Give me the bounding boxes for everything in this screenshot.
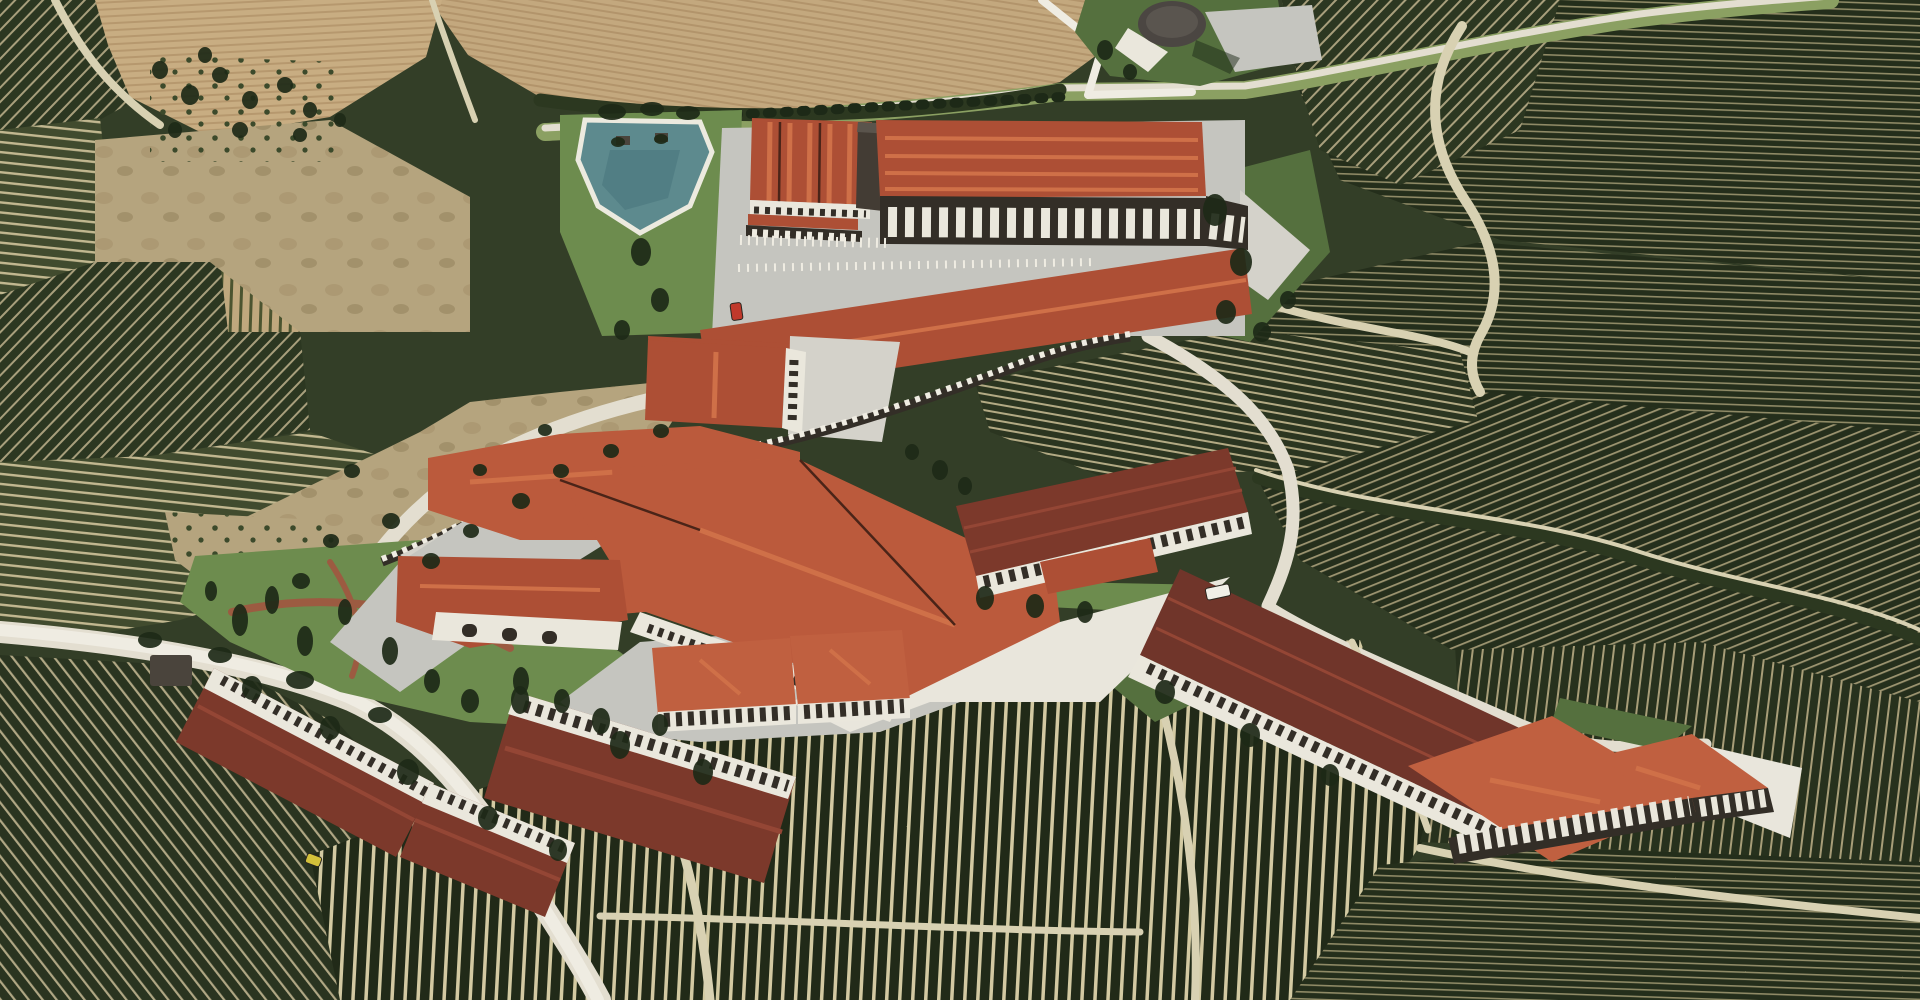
tree <box>473 464 487 476</box>
tree <box>603 444 619 458</box>
tree <box>598 104 626 120</box>
tree <box>1253 322 1271 342</box>
tree <box>1230 248 1252 276</box>
tree <box>1203 194 1227 226</box>
tree <box>198 47 212 63</box>
red-car <box>730 302 743 320</box>
tree <box>297 626 313 656</box>
small-hip-building-ridge <box>714 352 716 418</box>
tree <box>511 686 529 714</box>
circular-pavilion <box>1115 1 1322 74</box>
tree <box>1077 601 1093 623</box>
tree <box>976 586 994 610</box>
tree <box>277 77 293 93</box>
tree <box>338 599 352 625</box>
tree <box>653 424 669 438</box>
tree <box>676 106 700 120</box>
tree <box>538 424 552 436</box>
tree <box>212 67 228 83</box>
tree <box>611 137 625 147</box>
south-pavilion-a-roof <box>652 638 796 716</box>
tree <box>292 573 310 589</box>
tree <box>242 91 258 109</box>
tree <box>397 759 419 785</box>
tree <box>368 707 392 723</box>
tree <box>382 513 400 529</box>
tree <box>512 493 530 509</box>
tree <box>168 122 182 138</box>
tree <box>232 122 248 138</box>
tree <box>1123 64 1137 80</box>
tree <box>1026 594 1044 618</box>
tree <box>232 604 248 636</box>
tree <box>631 238 651 266</box>
tree <box>138 632 162 648</box>
tree <box>208 647 232 663</box>
tree <box>334 113 346 127</box>
tree <box>958 477 972 495</box>
tree <box>932 460 948 480</box>
tree <box>1240 723 1260 747</box>
tree <box>553 464 569 478</box>
tree <box>320 716 340 740</box>
tree <box>293 128 307 142</box>
tree <box>424 669 440 693</box>
south-pavilion-b-pillars <box>804 706 904 712</box>
tree <box>382 637 398 665</box>
tree <box>242 676 262 700</box>
tree <box>654 134 668 144</box>
tree <box>422 553 440 569</box>
tree <box>323 534 339 548</box>
tree <box>461 689 479 713</box>
tree <box>1280 291 1296 309</box>
tree <box>614 320 630 340</box>
tree <box>181 85 199 105</box>
tree <box>265 586 279 614</box>
tree <box>152 61 168 79</box>
tree <box>303 102 317 118</box>
tree <box>549 839 567 861</box>
winery-aerial-photo <box>0 0 1920 1000</box>
tree <box>651 288 669 312</box>
tree <box>652 714 668 736</box>
tree <box>205 581 217 601</box>
aerial-photo-stage <box>0 0 1920 1000</box>
tree <box>592 708 610 734</box>
annex-arch-1 <box>462 624 477 637</box>
tree <box>478 806 498 830</box>
tree <box>1155 680 1175 704</box>
pavilion-roof-top <box>1146 6 1198 38</box>
tree <box>640 102 664 116</box>
tree <box>1321 764 1339 786</box>
tree <box>463 524 479 538</box>
tree <box>610 731 630 759</box>
road-shed <box>150 655 192 686</box>
annex-arch-2 <box>502 628 517 641</box>
tree <box>554 689 570 713</box>
tree <box>286 671 314 689</box>
tree <box>1216 300 1236 324</box>
tree <box>905 444 919 460</box>
tree <box>344 464 360 478</box>
annex-arch-3 <box>542 631 557 644</box>
tree <box>1097 40 1113 60</box>
tree <box>693 759 713 785</box>
